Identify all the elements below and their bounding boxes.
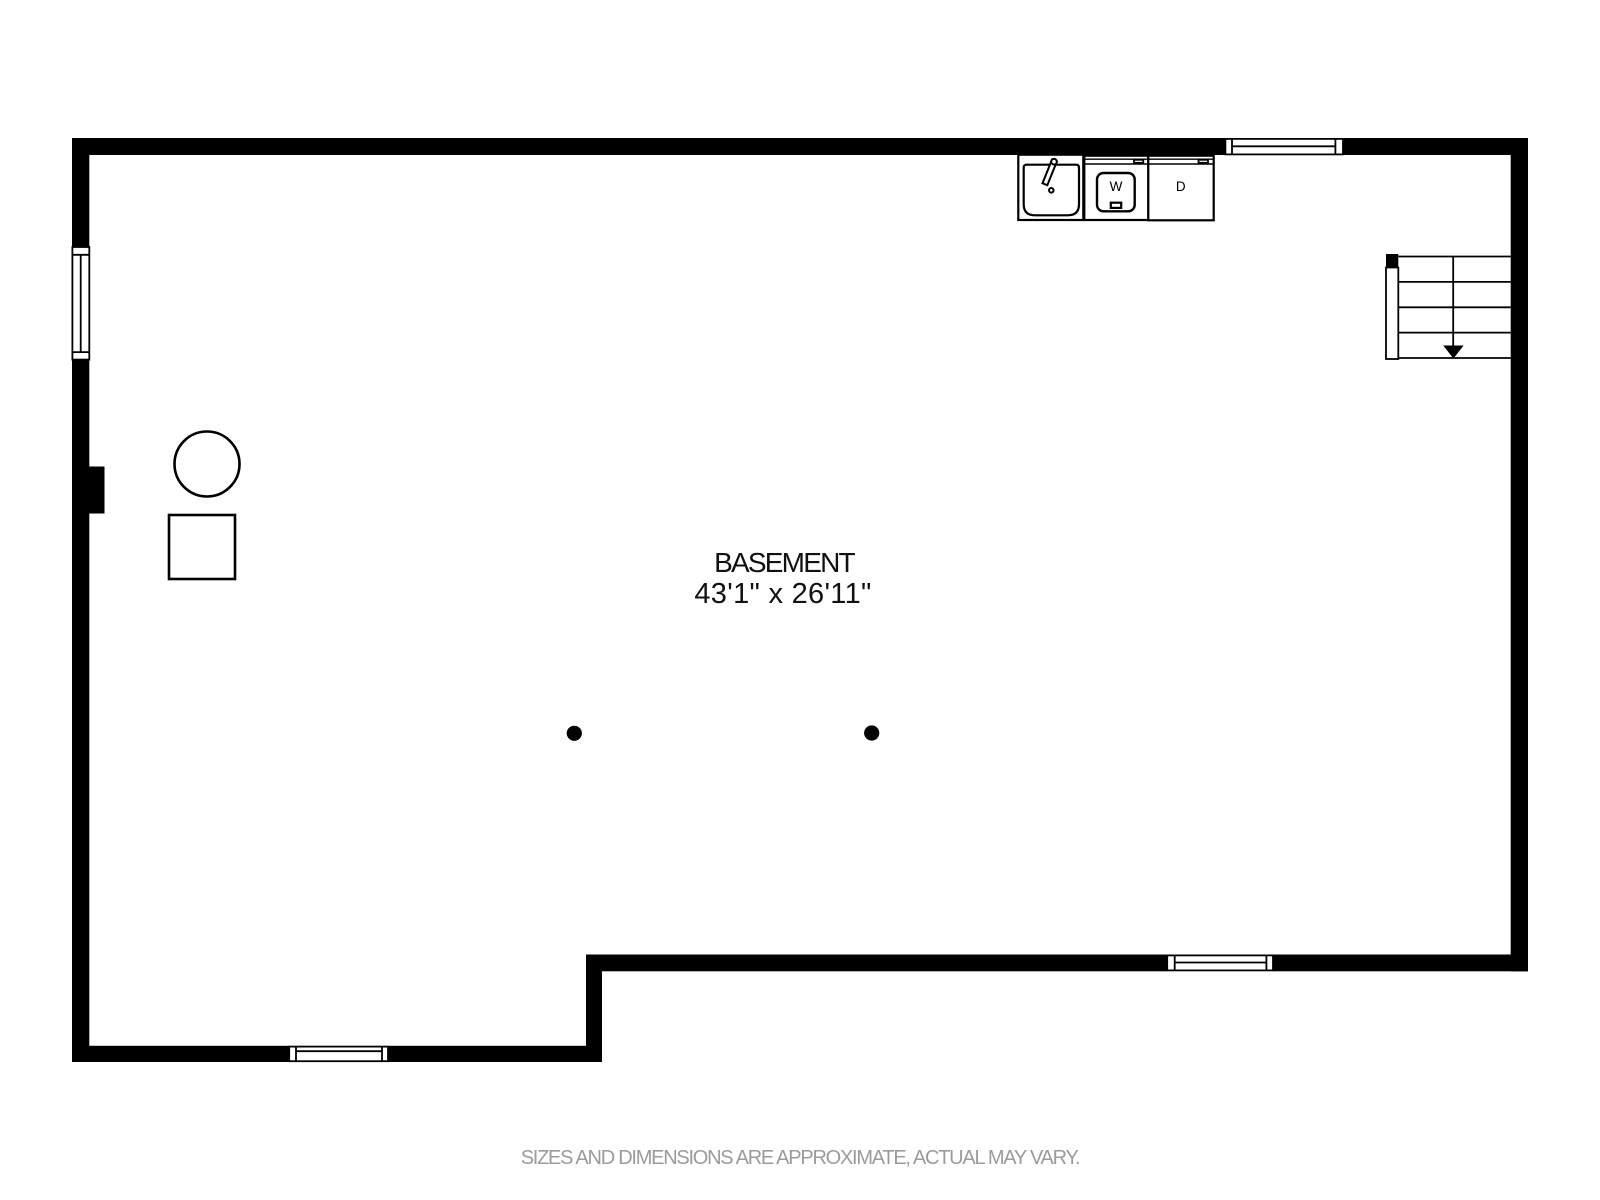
svg-text:43'1" x 26'11": 43'1" x 26'11" <box>694 578 871 610</box>
svg-text:BASEMENT: BASEMENT <box>714 547 855 578</box>
svg-text:D: D <box>1176 179 1186 194</box>
svg-text:W: W <box>1110 179 1123 194</box>
svg-text:SIZES AND DIMENSIONS ARE APPRO: SIZES AND DIMENSIONS ARE APPROXIMATE, AC… <box>521 1147 1080 1169</box>
